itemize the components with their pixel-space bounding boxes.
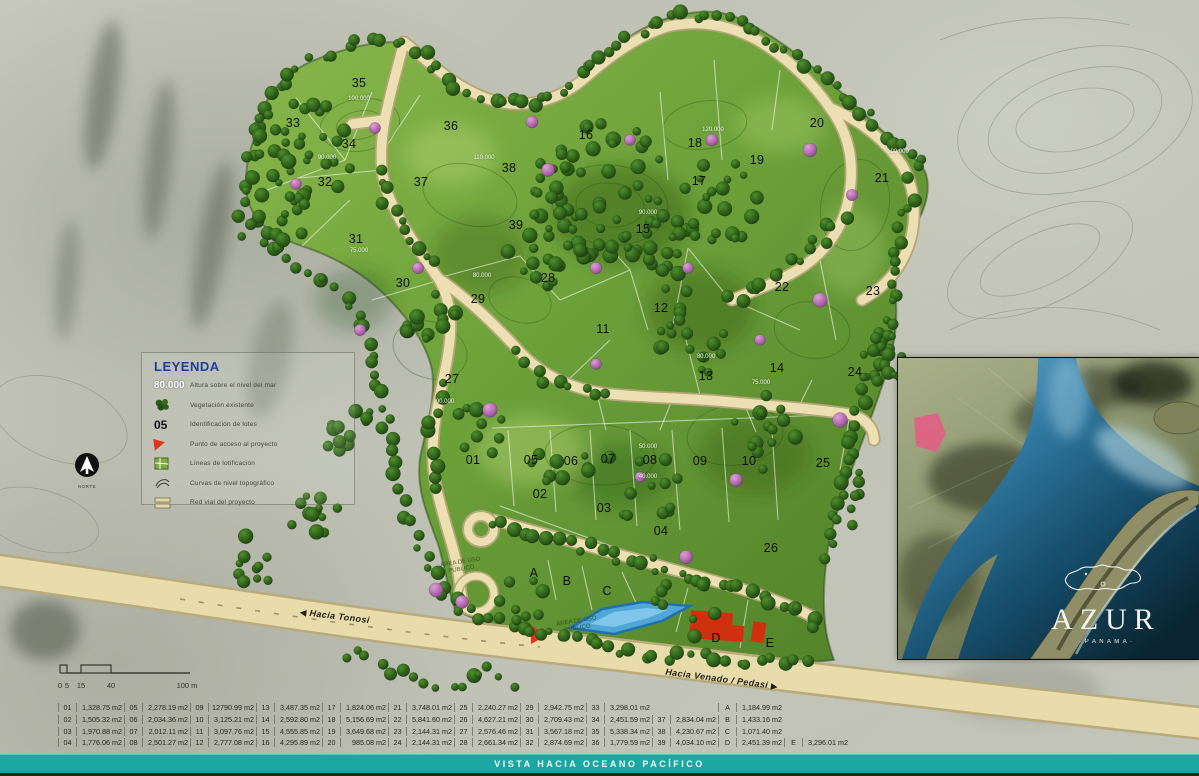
table-column-group: 252,240.27 m2264,627.21 m2272,576.46 m22… [454, 702, 519, 749]
lot-area-cell: 3,097.76 m2 [209, 727, 255, 736]
lot-label-13: 13 [699, 369, 714, 383]
lot-area-cell: 2,777.08 m2 [209, 738, 255, 747]
lot-number-cell: 22 [388, 715, 407, 724]
legend-items: 80.000Altura sobre el nivel del marVeget… [142, 376, 354, 513]
legend-item-label: Vegetación existente [190, 402, 254, 409]
brand-name: AZUR [1021, 603, 1191, 637]
lot-label-11: 11 [596, 322, 610, 336]
table-row: 225,841.60 m2 [388, 714, 453, 726]
lot-area-cell: 4,034.10 m2 [671, 738, 717, 747]
lot-number-cell: 23 [388, 727, 407, 736]
lot-number-cell: 35 [586, 727, 605, 736]
lot-number-cell: 19 [322, 727, 341, 736]
lot-number-cell: D [718, 738, 737, 747]
lot-number-cell: E [784, 738, 803, 747]
table-column-group: 011,328.75 m2021,505.32 m2031,970.88 m20… [58, 702, 123, 749]
legend-item: 05Identificación de lotes [142, 415, 354, 435]
lot-number-cell: 11 [190, 727, 209, 736]
lot-number-cell: 21 [388, 703, 407, 712]
lot-area-cell: 985.08 m2 [341, 738, 387, 747]
elevation-label: 90.000 [318, 155, 336, 161]
lot-label-24: 24 [848, 365, 863, 379]
table-row: 011,328.75 m2 [58, 702, 123, 714]
lot-area-cell: 2,144.31 m2 [407, 738, 453, 747]
lot-area-cell: 4,230.67 m2 [671, 727, 717, 736]
lot-number-cell: 08 [124, 738, 143, 747]
lot-number-cell: 20 [322, 738, 341, 747]
lot-number-cell: 06 [124, 715, 143, 724]
legend-item: Vegetación existente [142, 396, 354, 416]
table-column-group: 292,942.75 m2302,709.43 m2313,567.18 m23… [520, 702, 585, 749]
lot-area-cell: 2,451.39 m2 [737, 738, 783, 747]
table-row: 103,125.21 m2 [190, 714, 255, 726]
legend-item-label: Altura sobre el nivel del mar [190, 382, 276, 389]
vegetation-icon [154, 398, 190, 412]
lot-number-cell: 10 [190, 715, 209, 724]
lot-area-cell: 5,841.60 m2 [407, 715, 453, 724]
lot-number-cell: A [718, 703, 737, 712]
lot-label-14: 14 [770, 361, 785, 375]
lot-label-E: E [766, 636, 775, 650]
table-row: 133,487.35 m2 [256, 702, 321, 714]
table-row: 342,451.59 m2 [586, 714, 651, 726]
lot-area-cell: 2,834.04 m2 [671, 715, 717, 724]
table-row: 052,278.19 m2 [124, 702, 189, 714]
lot-label-03: 03 [597, 501, 612, 515]
elevation-label: 75.000 [752, 380, 770, 386]
table-row: A1,184.99 m2 [718, 702, 783, 714]
table-column-group: 333,298.01 m2342,451.59 m2355,338.34 m23… [586, 702, 651, 749]
lot-number-cell: 09 [190, 703, 209, 712]
lot-area-cell: 2,034.36 m2 [143, 715, 189, 724]
scale-tick-label: 15 [77, 681, 85, 690]
lot-number-cell: B [718, 715, 737, 724]
table-column-group: 213,748.01 m2225,841.60 m2232,144.31 m22… [388, 702, 453, 749]
lot-number-cell: 26 [454, 715, 473, 724]
table-row: 361,779.59 m2 [586, 737, 651, 749]
table-row: 372,834.04 m2 [652, 714, 717, 726]
scale-tick-label: 100 m [177, 681, 198, 690]
table-row: 333,298.01 m2 [586, 702, 651, 714]
table-row: B1,433.16 m2 [718, 714, 783, 726]
lot-area-cell: 3,567.18 m2 [539, 727, 585, 736]
lot-label-A: A [530, 566, 539, 580]
lot-number-cell: 13 [256, 703, 275, 712]
lot-label-28: 28 [541, 271, 556, 285]
table-row: 113,097.76 m2 [190, 725, 255, 737]
site-location-marker [914, 413, 946, 452]
lot-number-cell: 07 [124, 727, 143, 736]
legend-item-label: Punto de acceso al proyecto [190, 441, 277, 448]
table-row: 193,649.68 m2 [322, 725, 387, 737]
table-row: 082,501.27 m2 [124, 737, 189, 749]
elevation-label: 100.000 [887, 149, 909, 155]
lot-label-38: 38 [502, 161, 517, 175]
lot-number-cell: C [718, 727, 737, 736]
lot-number-cell: 38 [652, 727, 671, 736]
lot-number-cell: 16 [256, 738, 275, 747]
table-row: 185,156.69 m2 [322, 714, 387, 726]
lot-area-cell: 4,555.85 m2 [275, 727, 321, 736]
lot-area-cell: 2,451.59 m2 [605, 715, 651, 724]
lot-label-25: 25 [816, 456, 831, 470]
lot-area-cell: 2,576.46 m2 [473, 727, 519, 736]
table-row [784, 702, 849, 714]
scale-tick-label: 5 [65, 681, 69, 690]
scale-tick-label: 0 [58, 681, 62, 690]
lot-label-36: 36 [444, 119, 459, 133]
lot-number-cell: 32 [520, 738, 539, 747]
lot-label-31: 31 [349, 232, 364, 246]
elevation-label: 90.000 [436, 399, 454, 405]
table-row: 072,012.11 m2 [124, 725, 189, 737]
access-point-icon [154, 438, 190, 450]
legend-item: Líneas de lotificación [142, 454, 354, 474]
lot-label-10: 10 [742, 454, 757, 468]
lot-label-39: 39 [509, 218, 524, 232]
table-column-group: 171,824.06 m2185,156.69 m2193,649.68 m22… [322, 702, 387, 749]
lot-number-cell: 37 [652, 715, 671, 724]
lot-number-cell: 15 [256, 727, 275, 736]
lot-number-cell: 17 [322, 703, 341, 712]
legend-item-label: Curvas de nivel topográfico [190, 480, 274, 487]
elevation-label: 120.000 [702, 127, 724, 133]
north-label: NORTE [64, 484, 110, 489]
table-column-group: E3,296.01 m2 [784, 702, 849, 749]
legend-title: LEYENDA [154, 359, 354, 374]
lot-number-cell: 14 [256, 715, 275, 724]
table-row: 292,942.75 m2 [520, 702, 585, 714]
elevation-label: 90.000 [639, 210, 657, 216]
lot-area-cell: 1,970.88 m2 [77, 727, 123, 736]
lot-area-cell: 12790.99 m2 [209, 703, 255, 712]
elevation-label: 100.000 [348, 96, 370, 102]
lot-label-27: 27 [445, 372, 460, 386]
table-row: 021,505.32 m2 [58, 714, 123, 726]
table-row: 0912790.99 m2 [190, 702, 255, 714]
lot-number-cell: 25 [454, 703, 473, 712]
scale-bar-graphic [55, 660, 205, 676]
lot-area-cell: 5,156.69 m2 [341, 715, 387, 724]
lot-area-cell: 2,661.34 m2 [473, 738, 519, 747]
table-row: 302,709.43 m2 [520, 714, 585, 726]
contours-icon [154, 476, 190, 490]
north-arrow: NORTE [64, 452, 110, 489]
lot-label-06: 06 [564, 454, 579, 468]
lot-number-cell: 34 [586, 715, 605, 724]
lot-area-cell: 2,709.43 m2 [539, 715, 585, 724]
table-row: 213,748.01 m2 [388, 702, 453, 714]
table-row: 142,592.80 m2 [256, 714, 321, 726]
table-row: 20985.08 m2 [322, 737, 387, 749]
table-row: 062,034.36 m2 [124, 714, 189, 726]
lot-area-cell: 1,071.40 m2 [737, 727, 783, 736]
elevation-label: 40.000 [639, 474, 657, 480]
lot-label-37: 37 [414, 175, 429, 189]
lot-id-sample-icon: 05 [154, 418, 190, 432]
table-row [784, 725, 849, 737]
lot-area-cell: 3,296.01 m2 [803, 738, 849, 747]
lot-label-02: 02 [533, 487, 548, 501]
lot-area-cell: 2,874.69 m2 [539, 738, 585, 747]
lot-area-cell: 2,240.27 m2 [473, 703, 519, 712]
elevation-label: 110.000 [473, 155, 494, 161]
footer-title: VISTA HACIA OCEANO PACÍFICO [494, 759, 705, 769]
lot-label-08: 08 [643, 453, 658, 467]
table-row: 282,661.34 m2 [454, 737, 519, 749]
table-column-group: 133,487.35 m2142,592.80 m2154,555.85 m21… [256, 702, 321, 749]
table-row: 122,777.08 m2 [190, 737, 255, 749]
legend-item: Curvas de nivel topográfico [142, 474, 354, 494]
lot-number-cell: 27 [454, 727, 473, 736]
lot-number-cell: 05 [124, 703, 143, 712]
lot-number-cell: 01 [58, 703, 77, 712]
lot-label-22: 22 [775, 280, 790, 294]
lot-label-34: 34 [342, 137, 357, 151]
lot-label-04: 04 [654, 524, 669, 538]
table-row: 355,338.34 m2 [586, 725, 651, 737]
lot-number-cell: 28 [454, 738, 473, 747]
lot-label-26: 26 [764, 541, 779, 555]
lot-label-23: 23 [866, 284, 881, 298]
lot-number-cell: 24 [388, 738, 407, 747]
lot-area-cell: 2,942.75 m2 [539, 703, 585, 712]
elevation-sample-icon: 80.000 [154, 380, 190, 391]
lot-label-29: 29 [471, 292, 486, 306]
footer-bar: VISTA HACIA OCEANO PACÍFICO [0, 754, 1199, 773]
table-row: 394,034.10 m2 [652, 737, 717, 749]
lot-area-cell: 1,824.06 m2 [341, 703, 387, 712]
legend-panel: LEYENDA 80.000Altura sobre el nivel del … [141, 352, 355, 505]
lot-label-09: 09 [693, 454, 708, 468]
table-row: 272,576.46 m2 [454, 725, 519, 737]
lot-label-D: D [711, 631, 720, 645]
lot-number-cell: 39 [652, 738, 671, 747]
lot-area-cell: 1,328.75 m2 [77, 703, 123, 712]
lot-label-01: 01 [466, 453, 481, 467]
lot-area-cell: 2,012.11 m2 [143, 727, 189, 736]
table-row: 232,144.31 m2 [388, 725, 453, 737]
lot-area-cell: 1,505.32 m2 [77, 715, 123, 724]
lot-number-cell: 12 [190, 738, 209, 747]
lot-number-cell: 30 [520, 715, 539, 724]
table-column-group: 052,278.19 m2062,034.36 m2072,012.11 m20… [124, 702, 189, 749]
elevation-label: 75.000 [350, 248, 368, 254]
lot-area-cell: 1,779.59 m2 [605, 738, 651, 747]
lot-number-cell: 03 [58, 727, 77, 736]
lot-label-33: 33 [286, 116, 301, 130]
lot-area-cell: 3,298.01 m2 [605, 703, 651, 712]
table-column-group: 372,834.04 m2384,230.67 m2394,034.10 m2 [652, 702, 717, 749]
table-row: 154,555.85 m2 [256, 725, 321, 737]
lot-number-cell: 04 [58, 738, 77, 747]
lot-area-cell: 2,501.27 m2 [143, 738, 189, 747]
legend-item-label: Líneas de lotificación [190, 460, 255, 467]
lot-area-cell: 3,748.01 m2 [407, 703, 453, 712]
panama-outline-icon [1056, 560, 1156, 596]
scale-labels: 051540100 m [55, 681, 225, 691]
lot-label-35: 35 [352, 76, 367, 90]
lot-area-cell: 3,125.21 m2 [209, 715, 255, 724]
table-column-group: A1,184.99 m2B1,433.16 m2C1,071.40 m2D2,4… [718, 702, 783, 749]
table-row: D2,451.39 m2 [718, 737, 783, 749]
table-row: 041,776.06 m2 [58, 737, 123, 749]
legend-item: Punto de acceso al proyecto [142, 435, 354, 455]
table-row [784, 714, 849, 726]
table-row: E3,296.01 m2 [784, 737, 849, 749]
lot-area-cell: 1,776.06 m2 [77, 738, 123, 747]
brand-subtitle: · P A N A M A · [1021, 639, 1191, 645]
lot-area-cell: 4,627.21 m2 [473, 715, 519, 724]
lot-label-21: 21 [875, 171, 890, 185]
lot-label-12: 12 [654, 301, 669, 315]
lot-area-cell: 4,295.89 m2 [275, 738, 321, 747]
lot-area-cell: 2,278.19 m2 [143, 703, 189, 712]
lot-area-cell: 1,184.99 m2 [737, 703, 783, 712]
elevation-label: 50.000 [639, 444, 657, 450]
elevation-label: 80.000 [697, 354, 715, 360]
table-row: C1,071.40 m2 [718, 725, 783, 737]
legend-item: 80.000Altura sobre el nivel del mar [142, 376, 354, 396]
road-network-icon [154, 497, 190, 509]
lot-label-20: 20 [810, 116, 825, 130]
legend-item-label: Red vial del proyecto [190, 499, 255, 506]
table-row: 252,240.27 m2 [454, 702, 519, 714]
elevation-label: 80.000 [473, 273, 491, 279]
lot-area-cell: 3,649.68 m2 [341, 727, 387, 736]
scale-tick-label: 40 [107, 681, 115, 690]
inset-locator-map: AZUR · P A N A M A · [897, 357, 1199, 660]
table-row: 384,230.67 m2 [652, 725, 717, 737]
lot-area-cell: 1,433.16 m2 [737, 715, 783, 724]
lot-label-05: 05 [524, 453, 539, 467]
lot-number-cell: 33 [586, 703, 605, 712]
lot-number-cell: 18 [322, 715, 341, 724]
table-row: 164,295.89 m2 [256, 737, 321, 749]
table-row: 264,627.21 m2 [454, 714, 519, 726]
lot-label-07: 07 [601, 452, 616, 466]
legend-item-label: Identificación de lotes [190, 421, 257, 428]
lot-area-cell: 2,592.80 m2 [275, 715, 321, 724]
table-row: 171,824.06 m2 [322, 702, 387, 714]
table-row: 322,874.69 m2 [520, 737, 585, 749]
legend-item: Red vial del proyecto [142, 493, 354, 513]
lot-label-18: 18 [688, 136, 703, 150]
arrow-right-icon: ▶ [770, 682, 778, 692]
table-row: 031,970.88 m2 [58, 725, 123, 737]
lot-label-30: 30 [396, 276, 411, 290]
lot-label-B: B [563, 574, 572, 588]
lot-label-19: 19 [750, 153, 765, 167]
lot-label-C: C [602, 584, 611, 598]
lot-label-32: 32 [318, 175, 333, 189]
lot-label-16: 16 [579, 128, 594, 142]
lot-number-cell: 36 [586, 738, 605, 747]
lot-label-17: 17 [692, 174, 707, 188]
table-column-group: 0912790.99 m2103,125.21 m2113,097.76 m21… [190, 702, 255, 749]
brand-logo: AZUR · P A N A M A · [1021, 560, 1191, 645]
table-row: 242,144.31 m2 [388, 737, 453, 749]
lot-number-cell: 31 [520, 727, 539, 736]
lot-area-cell: 3,487.35 m2 [275, 703, 321, 712]
scale-bar: 051540100 m [55, 660, 225, 691]
lot-number-cell: 02 [58, 715, 77, 724]
lot-number-cell: 29 [520, 703, 539, 712]
north-arrow-icon [74, 452, 100, 478]
lot-area-table: 011,328.75 m2021,505.32 m2031,970.88 m20… [58, 702, 850, 749]
table-row: 313,567.18 m2 [520, 725, 585, 737]
lot-label-15: 15 [636, 222, 651, 236]
lot-lines-icon [154, 457, 190, 470]
arrow-left-icon: ◀ [300, 608, 308, 618]
table-row [652, 702, 717, 714]
lot-area-cell: 5,338.34 m2 [605, 727, 651, 736]
site-plan-page: 0102030405060708091011121314151617181920… [0, 0, 1199, 776]
lot-area-cell: 2,144.31 m2 [407, 727, 453, 736]
